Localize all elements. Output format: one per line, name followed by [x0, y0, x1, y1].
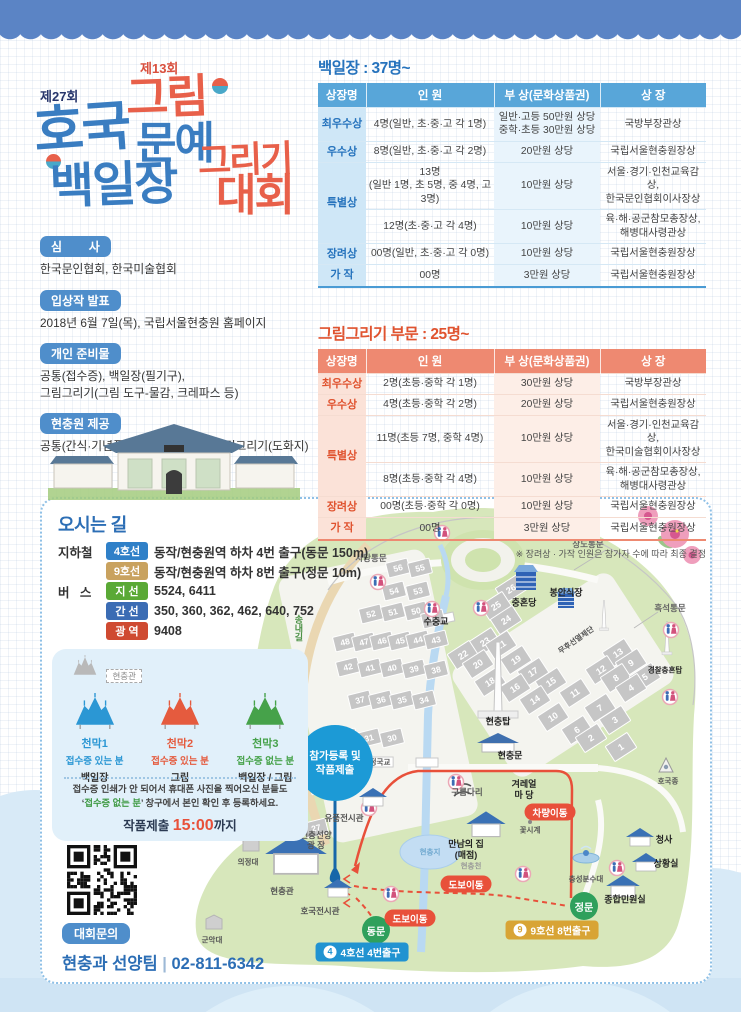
table-cell: 4명(초등·중학 각 2명) — [366, 394, 494, 415]
tent-item: 천막3접수증 없는 분백일장 / 그림 — [225, 693, 305, 784]
map-label: 봉안식장 — [549, 588, 582, 599]
tent-icon — [241, 693, 289, 729]
table-cell: 10만원 상당 — [494, 243, 600, 264]
subway-exit-badge: 44호선 4번출구 — [316, 943, 409, 962]
route-badge: 차량이동 — [525, 804, 576, 821]
map-label: 청사 — [656, 835, 673, 846]
transit-text: 9408 — [154, 624, 182, 638]
table-cell: 00명 — [366, 518, 494, 540]
tent-item: 천막1접수증 있는 분백일장 — [55, 693, 135, 784]
table-cell: 3만원 상당 — [494, 518, 600, 540]
gate-badge: 정문 — [570, 892, 598, 920]
table-cell: 10만원 상당 — [494, 416, 600, 463]
table-cell: 11명(초등 7명, 중학 4명) — [366, 416, 494, 463]
table-cell: 국방부장관상 — [600, 373, 706, 394]
submission-deadline: 작품제출 15:00까지 — [52, 815, 308, 835]
award-table: 상장명인 원부 상(문화상품권)상 장최우수상2명(초등·중학 각 1명)30만… — [318, 349, 706, 541]
route-badge: 도보이동 — [441, 876, 492, 893]
table-cell: 8명(초등·중학 각 4명) — [366, 463, 494, 497]
transit-text: 5524, 6411 — [154, 584, 216, 598]
map-label: 꽃시계 — [520, 826, 541, 835]
column-header: 부 상(문화상품권) — [494, 349, 600, 374]
top-band-scallop — [0, 30, 741, 44]
map-label: 현충탑 — [486, 717, 511, 728]
table-row: 특별상13명 (일반 1명, 초 5명, 중 4명, 고 3명)10만원 상당서… — [318, 163, 706, 210]
table-cell: 일반·고등 50만원 상당 중학·초등 30만원 상당 — [494, 108, 600, 142]
transit-row: 광 역9408 — [58, 621, 368, 641]
column-header: 상장명 — [318, 83, 366, 108]
table-cell: 00명(일반, 초·중·고 각 0명) — [366, 243, 494, 264]
contact-phone: 현충과 선양팀 | 02-811-6342 — [62, 950, 264, 974]
table-cell: 국립서울현충원장상 — [600, 141, 706, 162]
table-title: 백일장 : 37명~ — [318, 56, 706, 78]
table-note: ※ 장려상 · 가작 인원은 참가자 수에 따라 최종 결정 — [318, 547, 706, 560]
tents-row: 천막1접수증 있는 분백일장천막2접수증 있는 분그림천막3접수증 없는 분백일… — [52, 693, 308, 784]
table-cell: 가 작 — [318, 265, 366, 287]
directions-box: 오시는 길 지하철4호선동작/현충원역 하차 4번 출구(동문 150m)9호선… — [40, 497, 712, 984]
table-cell: 특별상 — [318, 416, 366, 497]
section-text: 공통(접수증), 백일장(필기구), — [40, 368, 320, 385]
table-cell: 20만원 상당 — [494, 394, 600, 415]
map-label: 호국종 — [658, 777, 679, 786]
column-header: 부 상(문화상품권) — [494, 83, 600, 108]
map-label: 의정대 — [238, 858, 259, 867]
table-cell: 장려상 — [318, 243, 366, 264]
registration-pin: 참가등록 및작품제출 — [297, 725, 373, 801]
table-cell: 12명(초·중·고 각 4명) — [366, 210, 494, 244]
map-label: 호국전시관 — [300, 906, 339, 916]
table-row: 장려상00명(일반, 초·중·고 각 0명)10만원 상당국립서울현충원장상 — [318, 243, 706, 264]
transit-line-badge: 9호선 — [106, 562, 148, 580]
section-text: 한국문인협회, 한국미술협회 — [40, 261, 320, 278]
column-header: 인 원 — [366, 349, 494, 374]
table-cell: 우수상 — [318, 394, 366, 415]
column-header: 상 장 — [600, 349, 706, 374]
table-cell: 서울·경기·인천교육감상, 한국미술협회이사장상 — [600, 416, 706, 463]
transit-line-badge: 지 선 — [106, 582, 148, 600]
gray-tent-icon — [68, 655, 102, 679]
table-cell: 국립서울현충원장상 — [600, 394, 706, 415]
subway-exit-badge: 99호선 8번출구 — [506, 921, 599, 940]
award-tables: 백일장 : 37명~상장명인 원부 상(문화상품권)상 장최우수상4명(일반, … — [318, 56, 706, 560]
column-header: 상 장 — [600, 83, 706, 108]
tent-note: 접수증 인쇄가 안 되어서 휴대폰 사진을 찍어오신 분들도 ‘접수증 없는 분… — [52, 783, 308, 811]
route-badge: 도보이동 — [385, 910, 436, 927]
tent-who: 접수증 있는 분 — [55, 753, 135, 767]
section-text: 그림그리기(그림 도구-물감, 크레파스 등) — [40, 385, 320, 402]
section-badge: 입상작 발표 — [40, 290, 121, 311]
contact-info: 대회문의 현충과 선양팀 | 02-811-6342 — [62, 923, 264, 974]
table-cell: 13명 (일반 1명, 초 5명, 중 4명, 고 3명) — [366, 163, 494, 210]
section-badge: 심 사 — [40, 236, 111, 257]
table-cell: 10만원 상당 — [494, 496, 600, 517]
table-row: 우수상4명(초등·중학 각 2명)20만원 상당국립서울현충원장상 — [318, 394, 706, 415]
tent-name: 천막1 — [55, 735, 135, 751]
map-label: 종합민원실 — [604, 895, 645, 906]
table-cell: 서울·경기·인천교육감상, 한국문인협회이사장상 — [600, 163, 706, 210]
transit-label: 지하철 — [58, 542, 100, 561]
award-table-coral: 그림그리기 부문 : 25명~상장명인 원부 상(문화상품권)상 장최우수상2명… — [318, 322, 706, 541]
table-cell: 우수상 — [318, 141, 366, 162]
map-label: 경찰충혼탑 — [648, 666, 683, 675]
table-row: 8명(초등·중학 각 4명)10만원 상당육·해·공군참모총장상, 해병대사령관… — [318, 463, 706, 497]
info-section: 개인 준비물공통(접수증), 백일장(필기구),그림그리기(그림 도구-물감, … — [40, 343, 320, 401]
table-row: 가 작00명3만원 상당국립서울현충원장상 — [318, 265, 706, 287]
tent-name: 천막3 — [225, 735, 305, 751]
map-label: 현충관 — [270, 886, 293, 896]
contact-badge: 대회문의 — [62, 923, 130, 944]
table-row: 장려상00명(초등·중학 각 0명)10만원 상당국립서울현충원장상 — [318, 496, 706, 517]
transit-row: 버 스지 선5524, 6411 — [58, 581, 368, 601]
map-label: 현충천 — [461, 862, 482, 871]
transit-line-badge: 광 역 — [106, 622, 148, 640]
map-label: 유품전시관 — [324, 813, 363, 823]
event-title: 제13회 그림 제27회 호국 문예 그리기 백일장 대회 — [40, 58, 320, 238]
table-cell: 국립서울현충원장상 — [600, 518, 706, 540]
top-band — [0, 0, 741, 30]
map-label: 수충교 — [424, 617, 449, 628]
transit-text: 350, 360, 362, 462, 640, 752 — [154, 604, 314, 618]
table-cell: 20만원 상당 — [494, 141, 600, 162]
table-cell: 육·해·공군참모총장상, 해병대사령관상 — [600, 210, 706, 244]
table-cell: 4명(일반, 초·중·고 각 1명) — [366, 108, 494, 142]
title-baekiljang: 백일장 — [49, 160, 177, 212]
map-label: 충성분수대 — [569, 875, 604, 884]
map-label: 상황실 — [654, 859, 679, 870]
transit-row: 간 선350, 360, 362, 462, 640, 752 — [58, 601, 368, 621]
tent-who: 접수증 있는 분 — [140, 753, 220, 767]
award-table: 상장명인 원부 상(문화상품권)상 장최우수상4명(일반, 초·중·고 각 1명… — [318, 83, 706, 288]
table-row: 특별상11명(초등 7명, 중학 4명)10만원 상당서울·경기·인천교육감상,… — [318, 416, 706, 463]
map-label: 구름다리 — [451, 787, 482, 797]
info-section: 심 사한국문인협회, 한국미술협회 — [40, 236, 320, 278]
table-cell: 국방부장관상 — [600, 108, 706, 142]
transit-label: 버 스 — [58, 582, 100, 601]
table-title: 그림그리기 부문 : 25명~ — [318, 322, 706, 344]
tent-panel: 현충관 천막1접수증 있는 분백일장천막2접수증 있는 분그림천막3접수증 없는… — [52, 649, 308, 841]
map-label: 무후선열제단 — [556, 624, 595, 655]
table-cell: 국립서울현충원장상 — [600, 243, 706, 264]
table-row: 최우수상2명(초등·중학 각 1명)30만원 상당국방부장관상 — [318, 373, 706, 394]
map-label: 흑석통문 — [654, 603, 685, 613]
hyeonchungmun-gate-illustration — [48, 416, 300, 504]
table-cell: 00명 — [366, 265, 494, 287]
hyeonchunggwan-tent: 현충관 — [68, 655, 142, 684]
transit-line-badge: 간 선 — [106, 602, 148, 620]
poster: 제13회 그림 제27회 호국 문예 그리기 백일장 대회 심 사한국문인협회,… — [0, 0, 741, 1012]
table-cell: 2명(초등·중학 각 1명) — [366, 373, 494, 394]
column-header: 인 원 — [366, 83, 494, 108]
table-row: 가 작00명3만원 상당국립서울현충원장상 — [318, 518, 706, 540]
map-label: 만남의 집 (매점) — [448, 839, 484, 861]
award-table-blue: 백일장 : 37명~상장명인 원부 상(문화상품권)상 장최우수상4명(일반, … — [318, 56, 706, 288]
table-row: 최우수상4명(일반, 초·중·고 각 1명)일반·고등 50만원 상당 중학·초… — [318, 108, 706, 142]
table-cell: 10만원 상당 — [494, 463, 600, 497]
map-label: 충혼당 — [512, 598, 537, 609]
table-cell: 국립서울현충원장상 — [600, 265, 706, 287]
table-cell: 국립서울현충원장상 — [600, 496, 706, 517]
directions-title: 오시는 길 — [58, 511, 127, 537]
table-cell: 8명(일반, 초·중·고 각 2명) — [366, 141, 494, 162]
table-cell: 10만원 상당 — [494, 163, 600, 210]
table-cell: 육·해·공군참모총장상, 해병대사령관상 — [600, 463, 706, 497]
transit-text: 동작/현충원역 하차 8번 출구(정문 10m) — [154, 562, 361, 581]
table-cell: 특별상 — [318, 163, 366, 244]
tent-item: 천막2접수증 있는 분그림 — [140, 693, 220, 784]
taegeuk-icon — [212, 78, 228, 94]
table-cell: 30만원 상당 — [494, 373, 600, 394]
info-section: 입상작 발표2018년 6월 7일(목), 국립서울현충원 홈페이지 — [40, 290, 320, 332]
column-header: 상장명 — [318, 349, 366, 374]
map-label: 현충문 — [498, 751, 523, 762]
table-cell: 최우수상 — [318, 373, 366, 394]
section-text: 2018년 6월 7일(목), 국립서울현충원 홈페이지 — [40, 315, 320, 332]
tent-who: 접수증 없는 분 — [225, 753, 305, 767]
table-row: 12명(초·중·고 각 4명)10만원 상당육·해·공군참모총장상, 해병대사령… — [318, 210, 706, 244]
map-label: 현충지 — [420, 848, 441, 857]
table-cell: 최우수상 — [318, 108, 366, 142]
map-label: 겨레얼 마 당 — [512, 779, 537, 801]
dotted-separator — [64, 777, 296, 779]
table-cell: 가 작 — [318, 518, 366, 540]
hyeonchunggwan-label: 현충관 — [106, 669, 141, 683]
tent-name: 천막2 — [140, 735, 220, 751]
title-hoguk: 호국 — [32, 99, 131, 160]
tent-icon — [71, 693, 119, 729]
table-cell: 00명(초등·중학 각 0명) — [366, 496, 494, 517]
transit-row: 9호선동작/현충원역 하차 8번 출구(정문 10m) — [58, 561, 368, 581]
table-row: 우수상8명(일반, 초·중·고 각 2명)20만원 상당국립서울현충원장상 — [318, 141, 706, 162]
tent-icon — [156, 693, 204, 729]
section-badge: 개인 준비물 — [40, 343, 121, 364]
table-cell: 장려상 — [318, 496, 366, 517]
title-daehoe: 대회 — [216, 174, 293, 218]
transit-line-badge: 4호선 — [106, 542, 148, 560]
table-cell: 10만원 상당 — [494, 210, 600, 244]
table-cell: 3만원 상당 — [494, 265, 600, 287]
title-grim: 그림 — [125, 73, 207, 122]
qr-code — [67, 845, 137, 915]
